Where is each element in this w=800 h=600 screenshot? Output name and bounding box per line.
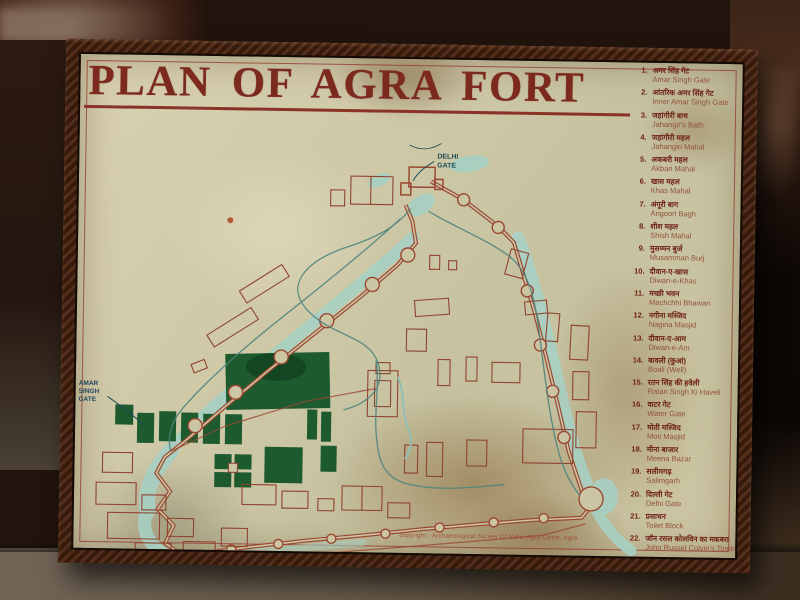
- amar-singh-gate-label: AMAR SINGH GATE: [78, 380, 144, 425]
- fort-walls: [155, 177, 593, 558]
- legend-item-english: Amar Singh Gate: [653, 75, 711, 85]
- building-outlines: [95, 172, 600, 558]
- legend-item-number: 10.: [630, 266, 645, 275]
- marker-dot: [227, 217, 233, 223]
- garden-areas: [114, 349, 338, 489]
- legend-item: 19. सलीमगढ़ Salimgarh: [626, 467, 732, 487]
- legend-item-number: 7.: [631, 199, 646, 208]
- legend-item-number: 16.: [627, 400, 642, 409]
- legend-item-english: Inner Amar Singh Gate: [652, 97, 728, 108]
- legend-item-english: Musamman Burj: [650, 253, 705, 263]
- legend-item: 10. दीवान-ए-खास Diwan-e-Khas: [629, 266, 735, 286]
- legend-item: 3. जहांगीरी बाथ Jahangir's Bath: [632, 110, 738, 130]
- legend-item-number: 2.: [632, 88, 647, 97]
- legend-item-english: Water Gate: [647, 409, 685, 419]
- legend-item: 13. दीवान-ए-आम Diwan-e-Am: [628, 333, 734, 353]
- legend-item-number: 4.: [632, 132, 647, 141]
- legend-item: 8. शीश महल Shish Mahal: [630, 222, 736, 242]
- moat-water: [144, 148, 637, 559]
- legend-item-english: Nagina Masjid: [649, 320, 697, 330]
- legend-item: 15. रतन सिंह की हवेली Ratan Singh Ki Hav…: [628, 378, 734, 398]
- legend-item-number: 17.: [627, 422, 642, 431]
- legend-item-number: 3.: [632, 110, 647, 119]
- legend-item: 7. अंगूरी बाग Angoori Bagh: [630, 199, 736, 219]
- legend-item-number: 11.: [629, 288, 644, 297]
- sign-face: PLAN OF AGRA FORT: [73, 54, 743, 558]
- legend-item-english: Diwan-e-Khas: [649, 275, 696, 285]
- legend-item-number: 6.: [631, 177, 646, 186]
- delhi-gate-label: DELHI GATE: [409, 143, 459, 182]
- legend-item-english: Diwan-e-Am: [648, 342, 689, 352]
- legend-item-english: Jahangiri Mahal: [651, 142, 704, 152]
- legend-item-number: 8.: [630, 222, 645, 231]
- legend-item-english: Salimgarh: [646, 476, 680, 486]
- legend-item: 6. खास महल Khas Mahal: [631, 177, 737, 197]
- legend-item: 14. बावली (कुआं) Boali (Well): [628, 355, 734, 375]
- svg-text:GATE: GATE: [78, 396, 96, 403]
- legend-item-number: 20.: [626, 489, 641, 498]
- legend-item-english: Machchhi Bhawan: [649, 298, 710, 308]
- legend-item-number: 9.: [630, 244, 645, 253]
- legend-item-number: 1.: [633, 66, 648, 75]
- legend-item-english: Meena Bazar: [647, 454, 692, 464]
- sign-board-frame: PLAN OF AGRA FORT: [58, 39, 758, 574]
- legend-item: 12. नगीना मस्जिद Nagina Masjid: [629, 311, 735, 331]
- legend-item-number: 19.: [626, 467, 641, 476]
- legend-item-english: Shish Mahal: [650, 231, 691, 241]
- legend-item: 1. अमर सिंह गेट Amar Singh Gate: [633, 66, 739, 86]
- legend-item-number: 12.: [629, 311, 644, 320]
- background-streak: [0, 8, 220, 42]
- legend-item-english: Angoori Bagh: [650, 209, 696, 219]
- legend-item-english: Boali (Well): [648, 365, 686, 375]
- legend-item-number: 5.: [631, 155, 646, 164]
- legend-item-number: 15.: [628, 378, 643, 387]
- legend-item-number: 18.: [627, 445, 642, 454]
- legend-item-english: Ratan Singh Ki Haveli: [648, 387, 721, 398]
- legend-item-number: 14.: [628, 355, 643, 364]
- legend-item: 9. मुसम्मन बुर्ज Musamman Burj: [630, 244, 736, 264]
- delhi-gate-structure: [401, 167, 443, 196]
- svg-text:AMAR: AMAR: [79, 380, 99, 387]
- legend-list: 1. अमर सिंह गेट Amar Singh Gate 2. आंतरि…: [625, 66, 739, 555]
- legend-item-english: Jahangir's Bath: [652, 119, 704, 129]
- legend-item-english: Toilet Block: [646, 521, 684, 531]
- legend-item-english: Akbari Mahal: [651, 164, 695, 174]
- legend-item: 20. दिल्ली गेट Delhi Gate: [626, 489, 732, 509]
- legend-item: 21. प्रसाधन Toilet Block: [626, 511, 732, 531]
- svg-text:SINGH: SINGH: [79, 388, 100, 395]
- svg-text:GATE: GATE: [437, 162, 456, 169]
- legend-item: 18. मीना बाजार Meena Bazar: [627, 445, 733, 465]
- legend-item: 5. अकबरी महल Akbari Mahal: [631, 155, 737, 175]
- legend-item: 17. मोती मस्जिद Moti Masjid: [627, 422, 733, 442]
- legend-item: 2. आंतरिक अमर सिंह गेट Inner Amar Singh …: [632, 88, 738, 108]
- legend-item-number: 21.: [626, 511, 641, 520]
- legend-item-english: Delhi Gate: [646, 498, 682, 508]
- photo-background: PLAN OF AGRA FORT: [0, 0, 800, 600]
- legend-item: 16. वाटर गेट Water Gate: [627, 400, 733, 420]
- legend-item: 11. मच्छी भवन Machchhi Bhawan: [629, 288, 735, 308]
- legend-item: 4. जहांगीरी महल Jahangiri Mahal: [631, 132, 737, 152]
- legend-item-english: John Russel Colvin's Tomb: [645, 543, 735, 554]
- svg-text:DELHI: DELHI: [437, 153, 458, 160]
- legend-item-english: Khas Mahal: [651, 186, 691, 196]
- legend-item-english: Moti Masjid: [647, 432, 685, 442]
- legend-item-number: 13.: [628, 333, 643, 342]
